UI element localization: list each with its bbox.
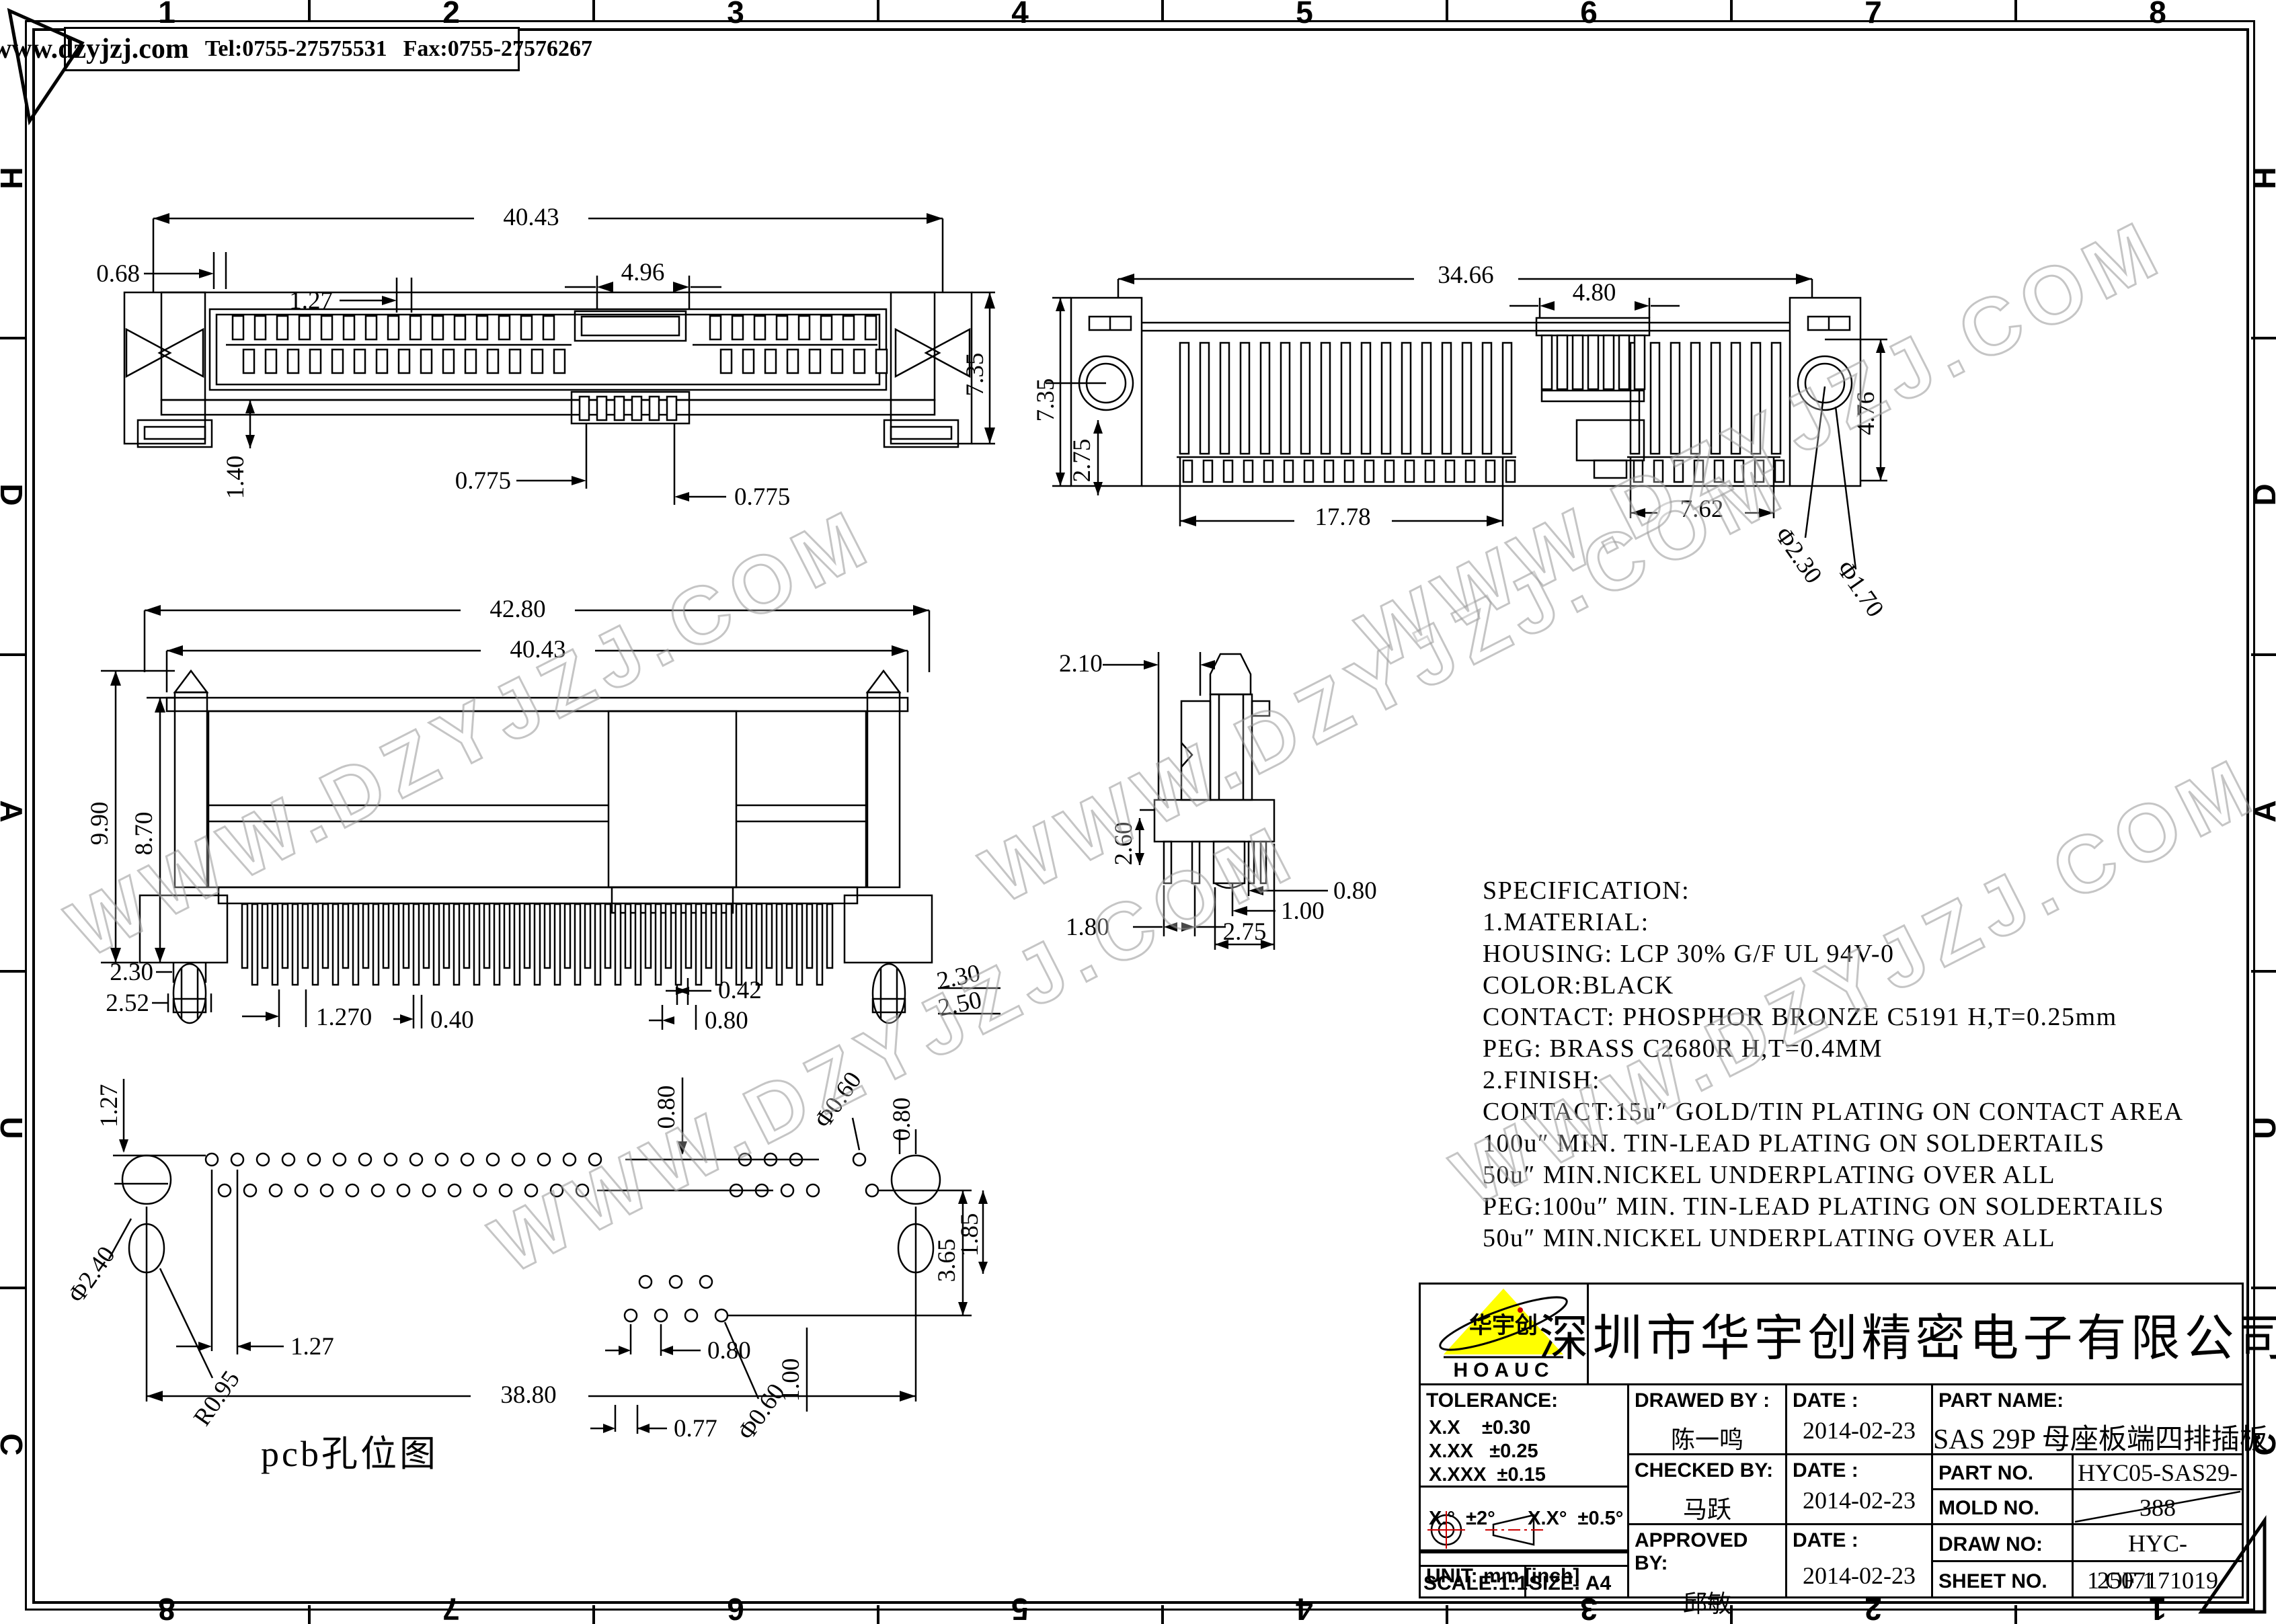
mold-no-label: MOLD NO. — [1933, 1490, 2072, 1524]
dim-rear-right-height: 4.76 — [1852, 392, 1880, 436]
zone-tick — [1161, 1605, 1164, 1624]
zone-letter-right: A — [2250, 797, 2276, 826]
zone-tick — [0, 1287, 25, 1289]
dim-end-cap: 2.10 — [1059, 650, 1103, 678]
drawed-by-cell: DRAWED BY : 陈一鸣 — [1627, 1383, 1787, 1455]
approved-by-label: APPROVED BY: — [1629, 1525, 1785, 1579]
dim-pcb-corner-radius: R0.95 — [188, 1366, 245, 1431]
spec-line: HOUSING: LCP 30% G/F UL 94V-0 — [1483, 938, 2242, 970]
dim-pcb-row-offset: 1.27 — [95, 1084, 123, 1128]
zone-letter-left: C — [0, 1430, 26, 1459]
zone-tick — [592, 1605, 595, 1624]
zone-number-top: 2 — [436, 0, 466, 27]
end-view-drawing: 2.10 2.60 1.80 0.80 1.00 2.75 — [1039, 642, 1402, 965]
zone-number-top: 8 — [2143, 0, 2172, 27]
fax-number: Fax:0755-27576267 — [403, 36, 592, 62]
zone-tick — [2014, 0, 2017, 20]
phone-number: Tel:0755-27575531 — [205, 36, 387, 62]
dim-front-key-width: 4.96 — [621, 259, 665, 286]
checked-by-label: CHECKED BY: — [1629, 1455, 1785, 1486]
approved-by-value: 邱敏 — [1629, 1584, 1785, 1619]
dim-side-peg-left-top: 2.30 — [110, 959, 153, 986]
pcb-layout-drawing: 1.27 0.80 Φ0.60 0.80 Φ2.40 R0.95 1.27 0.… — [74, 1065, 995, 1442]
pcb-layout-caption: pcb孔位图 — [202, 1424, 498, 1477]
tolerance-row: X.XXX ±0.15 — [1421, 1463, 1627, 1487]
zone-tick — [308, 0, 311, 20]
spec-line: CONTACT: PHOSPHOR BRONZE C5191 H,T=0.25m… — [1483, 1002, 2242, 1033]
zone-letter-right: D — [2250, 480, 2276, 510]
spec-line: 100u″ MIN. TIN-LEAD PLATING ON SOLDERTAI… — [1483, 1128, 2242, 1160]
dim-rear-span-left: 17.78 — [1314, 503, 1370, 531]
zone-letter-left: D — [0, 480, 26, 510]
zone-tick — [877, 1605, 879, 1624]
dim-rear-overall: 34.66 — [1438, 261, 1493, 289]
dim-side-peg-left-bottom: 2.52 — [106, 989, 149, 1017]
dim-pcb-hole-top: Φ0.60 — [809, 1067, 867, 1133]
dim-side-body-height: 8.70 — [130, 812, 158, 856]
checked-by-cell: CHECKED BY: 马跃 — [1627, 1453, 1787, 1525]
dim-side-pin-width-b: 0.42 — [718, 977, 762, 1004]
zone-tick — [0, 653, 25, 656]
drawed-by-value: 陈一鸣 — [1629, 1420, 1785, 1455]
zone-tick — [0, 337, 25, 339]
spec-line: 1.MATERIAL: — [1483, 907, 2242, 938]
tolerance-row: X.XX ±0.25 — [1421, 1440, 1627, 1463]
zone-number-top: 1 — [152, 0, 182, 27]
end-geometry — [1154, 654, 1274, 888]
dim-end-span: 2.75 — [1223, 918, 1267, 946]
dim-front-overall: 40.43 — [503, 204, 559, 231]
dim-end-tail: 2.60 — [1110, 822, 1138, 866]
draw-no-label-cell: DRAW NO: — [1931, 1523, 2074, 1562]
part-name-value: SAS 29P 母座板端四排插板 — [1933, 1416, 2242, 1457]
dim-rear-tail: 2.75 — [1068, 439, 1096, 483]
dim-side-pin-width: 0.40 — [430, 1006, 474, 1034]
sheet-no-label: SHEET NO. — [1933, 1562, 2072, 1597]
zone-tick — [2014, 1605, 2017, 1624]
checked-date-cell: DATE : 2014-02-23 — [1785, 1453, 1933, 1525]
tolerance-label: TOLERANCE: — [1421, 1385, 1627, 1416]
size-cell: SIZE: A4 — [1524, 1565, 1629, 1598]
drawed-date-cell: DATE : 2014-02-23 — [1785, 1383, 1933, 1455]
side-view-drawing: 42.80 40.43 9.90 8.70 2.30 2.52 1.270 0.… — [74, 592, 982, 1035]
spec-line: PEG: BRASS C2680R H,T=0.4MM — [1483, 1033, 2242, 1065]
dim-front-leg: 1.40 — [222, 456, 249, 499]
zone-number-bottom: 5 — [1005, 1594, 1035, 1624]
approved-date-cell: DATE : 2014-02-23 — [1785, 1523, 1933, 1598]
dim-pcb-pitch-b: 1.00 — [777, 1358, 805, 1402]
date-label: DATE : — [1787, 1385, 1931, 1416]
draw-no-label: DRAW NO: — [1933, 1525, 2072, 1560]
dim-pcb-overall: 38.80 — [500, 1381, 556, 1409]
dim-pcb-offset-bottom: 0.77 — [674, 1415, 717, 1443]
dim-front-slot-right: 0.775 — [734, 483, 790, 511]
zone-letter-right: H — [2250, 163, 2276, 193]
zone-tick — [308, 1605, 311, 1624]
zone-tick — [1730, 0, 1733, 20]
title-block: 华宇创 HOAUC 深圳市华宇创精密电子有限公司 TOLERANCE: X.X … — [1419, 1283, 2244, 1598]
zone-letter-right: U — [2250, 1113, 2276, 1143]
spec-line: 50u″ MIN.NICKEL UNDERPLATING OVER ALL — [1483, 1160, 2242, 1191]
zone-tick — [1161, 0, 1164, 20]
dim-side-overall: 42.80 — [489, 596, 545, 623]
dim-end-offset: 1.80 — [1066, 913, 1109, 941]
date-label: DATE : — [1787, 1455, 1931, 1486]
part-no-label-cell: PART NO. — [1931, 1453, 2074, 1490]
spec-line: 50u″ MIN.NICKEL UNDERPLATING OVER ALL — [1483, 1223, 2242, 1254]
checked-by-value: 马跃 — [1629, 1490, 1785, 1525]
zone-number-bottom: 2 — [1858, 1594, 1888, 1624]
specification-block: SPECIFICATION: 1.MATERIAL: HOUSING: LCP … — [1483, 875, 2242, 1254]
approved-date-value: 2014-02-23 — [1787, 1561, 1931, 1590]
zone-tick — [1446, 1605, 1448, 1624]
corner-arrow-top-left — [5, 7, 93, 128]
front-view-drawing: 40.43 0.68 1.27 4.96 7.35 1.40 0.775 0.7… — [101, 198, 995, 514]
rear-view-drawing: 34.66 4.80 7.35 2.75 17.78 7.62 4.76 Φ2.… — [1039, 259, 1893, 649]
zone-tick — [2251, 970, 2276, 973]
dim-rear-span-right: 7.62 — [1680, 495, 1724, 523]
zone-tick — [2251, 1287, 2276, 1289]
part-no-value: HYC05-SAS29-388 — [2072, 1453, 2244, 1490]
approved-by-cell: APPROVED BY: 邱敏 — [1627, 1523, 1787, 1598]
part-name-cell: PART NAME: SAS 29P 母座板端四排插板 — [1931, 1383, 2244, 1455]
zone-tick — [1446, 0, 1448, 20]
zone-tick — [2251, 337, 2276, 339]
zone-tick — [0, 970, 25, 973]
zone-tick — [877, 0, 879, 20]
zone-number-bottom: 6 — [721, 1594, 750, 1624]
sheet-no-label-cell: SHEET NO. — [1931, 1560, 2074, 1598]
scale-cell: SCALE:1:1 — [1419, 1565, 1526, 1598]
rear-geometry — [1071, 298, 1860, 486]
tolerance-cell: TOLERANCE: X.X ±0.30 X.XX ±0.25 X.XXX ±0… — [1419, 1383, 1629, 1488]
drawed-date-value: 2014-02-23 — [1787, 1416, 1931, 1445]
zone-number-top: 6 — [1574, 0, 1604, 27]
dim-pcb-hole-gap: 0.80 — [888, 1098, 916, 1141]
zone-letter-left: H — [0, 163, 26, 193]
spec-line: 2.FINISH: — [1483, 1065, 2242, 1096]
website-header-box: www.dzyjzj.com Tel:0755-27575531 Fax:075… — [64, 27, 520, 71]
dim-pcb-span-right-b: 1.85 — [956, 1213, 984, 1257]
dim-side-pin-pitch: 1.270 — [316, 1004, 372, 1031]
dim-rear-hole-outer: Φ2.30 — [1769, 522, 1827, 589]
mold-no-label-cell: MOLD NO. — [1931, 1488, 2074, 1525]
zone-letter-left: U — [0, 1113, 26, 1143]
part-no-label: PART NO. — [1933, 1455, 2072, 1489]
zone-number-bottom: 7 — [436, 1594, 466, 1624]
dim-side-height: 9.90 — [86, 802, 114, 846]
zone-tick — [592, 0, 595, 20]
spec-line: SPECIFICATION: — [1483, 875, 2242, 907]
dim-side-pin-gap: 0.80 — [705, 1007, 748, 1034]
dim-rear-key-width: 4.80 — [1573, 279, 1616, 307]
pcb-geometry — [122, 1153, 940, 1322]
dim-front-slot-left: 0.775 — [455, 467, 511, 495]
dim-pcb-pitch: 1.27 — [290, 1333, 334, 1361]
zone-number-bottom: 4 — [1290, 1594, 1319, 1624]
drawed-by-label: DRAWED BY : — [1629, 1385, 1785, 1416]
zone-number-bottom: 8 — [152, 1594, 182, 1624]
dim-front-offset: 0.68 — [96, 260, 140, 288]
dim-pcb-col-top: 0.80 — [653, 1086, 680, 1129]
zone-number-top: 3 — [721, 0, 750, 27]
tolerance-row: X.X ±0.30 — [1421, 1416, 1627, 1440]
side-geometry — [140, 671, 932, 1023]
dim-side-body: 40.43 — [510, 636, 565, 663]
dim-pcb-gap-mid: 0.80 — [707, 1337, 751, 1365]
dim-rear-height: 7.35 — [1032, 378, 1060, 422]
zone-number-top: 4 — [1005, 0, 1035, 27]
part-name-label: PART NAME: — [1933, 1385, 2242, 1416]
spec-line: PEG:100u″ MIN. TIN-LEAD PLATING ON SOLDE… — [1483, 1191, 2242, 1223]
dim-rear-hole-inner: Φ1.70 — [1831, 556, 1889, 622]
dim-front-height: 7.35 — [962, 353, 989, 397]
spec-line: COLOR:BLACK — [1483, 970, 2242, 1002]
front-geometry — [124, 292, 972, 447]
corner-arrow-bottom-right — [2196, 1516, 2270, 1617]
date-label: DATE : — [1787, 1525, 1931, 1556]
projection-symbol — [1426, 1510, 1574, 1550]
drawing-sheet: 1 2 3 4 5 6 7 8 8 7 6 5 4 3 2 1 H D A U … — [0, 0, 2276, 1624]
zone-tick — [2251, 653, 2276, 656]
dim-end-pitch: 1.00 — [1281, 897, 1325, 925]
zone-number-top: 7 — [1858, 0, 1888, 27]
scale-label: SCALE:1:1 — [1421, 1567, 1524, 1600]
dim-end-pin: 0.80 — [1333, 877, 1377, 905]
zone-letter-left: A — [0, 797, 26, 826]
dim-front-pitch: 1.27 — [289, 287, 333, 315]
checked-date-value: 2014-02-23 — [1787, 1486, 1931, 1514]
logo-brand-text: 华宇创 — [1469, 1313, 1538, 1338]
spec-line: CONTACT:15u″ GOLD/TIN PLATING ON CONTACT… — [1483, 1096, 2242, 1128]
company-name: 深圳市华宇创精密电子有限公司 — [1587, 1283, 2244, 1385]
size-label: SIZE: A4 — [1526, 1567, 1627, 1600]
zone-number-top: 5 — [1290, 0, 1319, 27]
